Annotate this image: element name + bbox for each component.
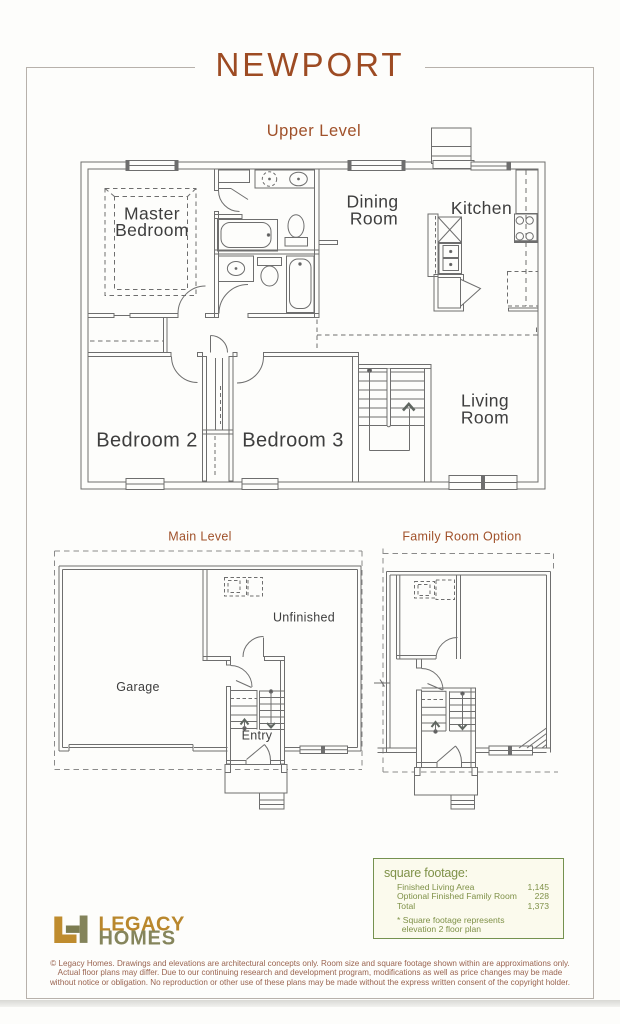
- svg-text:HOMES: HOMES: [99, 928, 176, 950]
- svg-text:Upper Level: Upper Level: [267, 122, 361, 140]
- svg-text:Family Room Option: Family Room Option: [402, 530, 521, 544]
- svg-text:Room: Room: [350, 209, 398, 229]
- svg-text:Unfinished: Unfinished: [273, 611, 335, 625]
- svg-text:Entry: Entry: [242, 729, 273, 743]
- svg-text:Bedroom 3: Bedroom 3: [242, 430, 343, 452]
- svg-text:Bedroom 2: Bedroom 2: [96, 430, 197, 452]
- svg-text:Bedroom: Bedroom: [115, 220, 189, 240]
- svg-text:Kitchen: Kitchen: [451, 198, 512, 218]
- svg-text:Garage: Garage: [116, 680, 160, 694]
- svg-text:Main Level: Main Level: [168, 530, 231, 544]
- svg-text:Room: Room: [461, 408, 509, 428]
